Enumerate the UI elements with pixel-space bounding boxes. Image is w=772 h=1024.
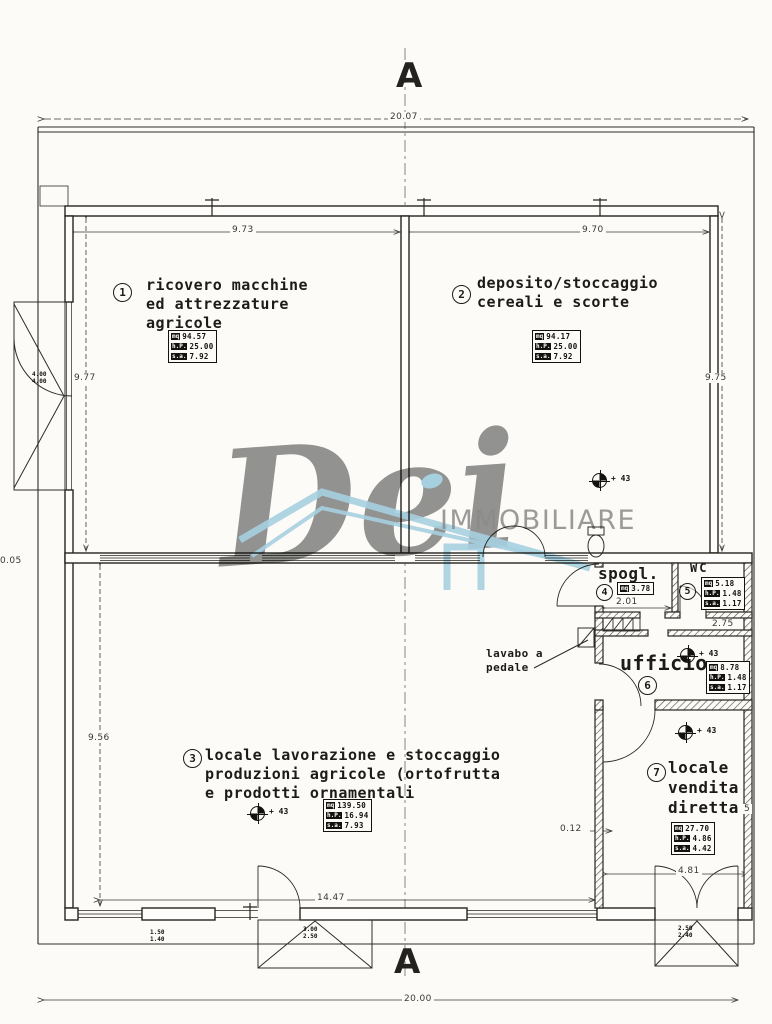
- room7-mq-label: mq: [674, 825, 683, 833]
- dim-top-overall: 20.07: [388, 112, 420, 122]
- room2-hp-label: h.P.: [535, 343, 551, 351]
- section-marker-top: A: [396, 56, 422, 96]
- garage-door-shop: [655, 920, 738, 966]
- spogl-door-arc: [557, 564, 599, 606]
- room4-mq-label: mq: [620, 585, 629, 593]
- room6-sa-label: s.a.: [709, 684, 725, 692]
- room4-number: 4: [596, 584, 613, 601]
- benchmark-icon: [678, 725, 693, 740]
- size-window-left: 1.50 1.40: [150, 930, 164, 944]
- room2-label: deposito/stoccaggio cereali e scorte: [477, 274, 658, 312]
- dim-right-upper: 9.75: [703, 373, 729, 383]
- shop-door-right-arc: [697, 866, 738, 908]
- room7-mq-value: 27.70: [685, 824, 709, 833]
- room3-data-box: mq139.50 h.P.16.94 s.a.7.93: [323, 799, 372, 832]
- dim-left-upper: 9.77: [72, 373, 98, 383]
- room3-label: locale lavorazione e stoccaggio produzio…: [205, 746, 500, 802]
- dim-spogl-width: 2.01: [614, 597, 640, 607]
- benchmark-icon: [250, 806, 265, 821]
- dim-shopfront: 4.81: [676, 866, 702, 876]
- room7-door-arc: [603, 710, 655, 762]
- room7-label: locale vendita diretta: [668, 758, 739, 818]
- benchmark-icon: [680, 648, 695, 663]
- room6-level-marker: + 43: [680, 648, 718, 663]
- partition-walls: [595, 563, 752, 908]
- room5-label: WC: [690, 561, 708, 576]
- room1-data-box: mq94.57 h.P.25.00 s.a.7.92: [168, 330, 217, 363]
- corner-detail: [40, 186, 68, 206]
- room2-mq-value: 94.17: [546, 332, 570, 341]
- room6-sa-value: 1.17: [727, 683, 746, 692]
- room7-sa-label: s.a.: [674, 845, 690, 853]
- site-boundary: [38, 127, 754, 944]
- room5-mq-value: 5.18: [715, 579, 734, 588]
- room5-hp-label: h.P.: [704, 590, 720, 598]
- size-left-door: 4.00 4.00: [32, 372, 46, 386]
- door-swings: [258, 526, 738, 908]
- dim-left-partial: 0.05: [0, 556, 24, 566]
- room5-data-box: mq5.18 h.P.1.48 s.a.1.17: [701, 577, 745, 610]
- room2-number: 2: [452, 285, 471, 304]
- room6-number: 6: [638, 676, 657, 695]
- room1-number: 1: [113, 283, 132, 302]
- room2-level-marker: + 43: [592, 473, 630, 488]
- room1-sa-label: s.a.: [171, 353, 187, 361]
- room3-sa-label: s.a.: [326, 822, 342, 830]
- room3-number: 3: [183, 749, 202, 768]
- lavabo-annotation: lavabo a pedale: [486, 647, 543, 675]
- room6-data-box: mq8.78 h.P.1.48 s.a.1.17: [706, 661, 750, 694]
- room5-number: 5: [679, 583, 696, 600]
- dim-bottom-overall: 20.00: [402, 994, 434, 1004]
- room1-mq-label: mq: [171, 333, 180, 341]
- room1-hp-value: 25.00: [189, 342, 213, 351]
- room7-number: 7: [647, 763, 666, 782]
- dim-left-lower: 9.56: [86, 733, 112, 743]
- room3-hp-value: 16.94: [344, 811, 368, 820]
- room3-mq-value: 139.50: [337, 801, 366, 810]
- room2-hp-value: 25.00: [553, 342, 577, 351]
- room2-mq-label: mq: [535, 333, 544, 341]
- shower-hatch: [603, 618, 640, 631]
- room3-sa-value: 7.93: [344, 821, 363, 830]
- room5-sa-value: 1.17: [722, 599, 741, 608]
- room1-hp-label: h.P.: [171, 343, 187, 351]
- dim-bay-left: 9.73: [230, 225, 256, 235]
- room2-sa-label: s.a.: [535, 353, 551, 361]
- room1-sa-value: 7.92: [189, 352, 208, 361]
- room2-sa-value: 7.92: [553, 352, 572, 361]
- room7-hp-value: 4.86: [692, 834, 711, 843]
- garage-door-left: [14, 302, 72, 490]
- plan-linework: [0, 0, 772, 1024]
- room4-mq-value: 3.78: [631, 584, 650, 593]
- room4-label: spogl.: [598, 564, 659, 584]
- dim-wc-width: 2.75: [710, 619, 736, 629]
- room3-mq-label: mq: [326, 802, 335, 810]
- benchmark-icon: [592, 473, 607, 488]
- dim-hall-width: 14.47: [315, 893, 347, 903]
- dim-bay-right: 9.70: [580, 225, 606, 235]
- room4-data-box: mq3.78: [617, 582, 654, 595]
- room7-sa-value: 4.42: [692, 844, 711, 853]
- floor-plan-sheet: Dei IMMOBILIARE A A 20.07 9.73 9.70 9.77…: [0, 0, 772, 1024]
- size-shop-door: 2.50 2.40: [678, 926, 692, 940]
- room5-sa-label: s.a.: [704, 600, 720, 608]
- bottom-door-arc: [258, 866, 300, 908]
- room6-hp-value: 1.48: [727, 673, 746, 682]
- room6-mq-value: 8.78: [720, 663, 739, 672]
- room3-hp-label: h.P.: [326, 812, 342, 820]
- room6-mq-label: mq: [709, 664, 718, 672]
- room1-mq-value: 94.57: [182, 332, 206, 341]
- section-marker-bottom: A: [394, 942, 420, 982]
- dim-right-partial: 5: [742, 804, 752, 814]
- room5-mq-label: mq: [704, 580, 713, 588]
- room2-data-box: mq94.17 h.P.25.00 s.a.7.92: [532, 330, 581, 363]
- room7-level-marker: + 43: [678, 725, 716, 740]
- dim-wall-offset: 0.12: [558, 824, 584, 834]
- room6-hp-label: h.P.: [709, 674, 725, 682]
- room5-hp-value: 1.48: [722, 589, 741, 598]
- size-garage-center: 3.00 2.50: [303, 927, 317, 941]
- room7-hp-label: h.P.: [674, 835, 690, 843]
- room7-data-box: mq27.70 h.P.4.86 s.a.4.42: [671, 822, 715, 855]
- room1-label: ricovero macchine ed attrezzature agrico…: [146, 276, 308, 332]
- room3-level-marker: + 43: [250, 806, 288, 821]
